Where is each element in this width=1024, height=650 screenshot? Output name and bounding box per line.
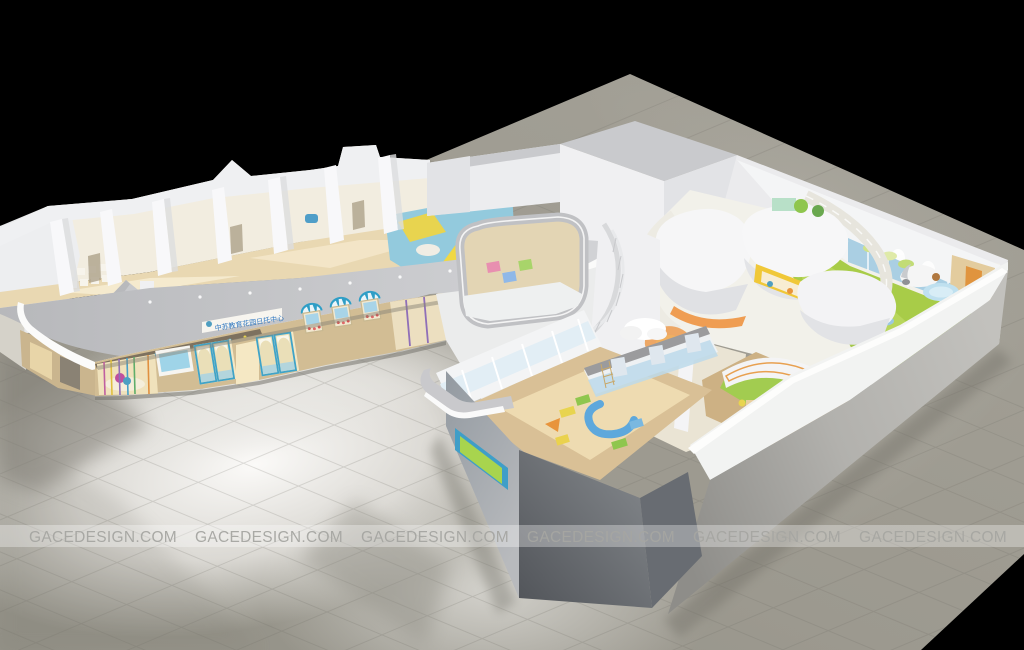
- svg-text:GACEDESIGN.COM: GACEDESIGN.COM: [361, 529, 509, 546]
- svg-text:GACEDESIGN.COM: GACEDESIGN.COM: [693, 529, 841, 546]
- svg-text:GACEDESIGN.COM: GACEDESIGN.COM: [29, 529, 177, 546]
- svg-text:GACEDESIGN.COM: GACEDESIGN.COM: [195, 529, 343, 546]
- svg-text:GACEDESIGN.COM: GACEDESIGN.COM: [859, 529, 1007, 546]
- svg-text:GACEDESIGN.COM: GACEDESIGN.COM: [527, 529, 675, 546]
